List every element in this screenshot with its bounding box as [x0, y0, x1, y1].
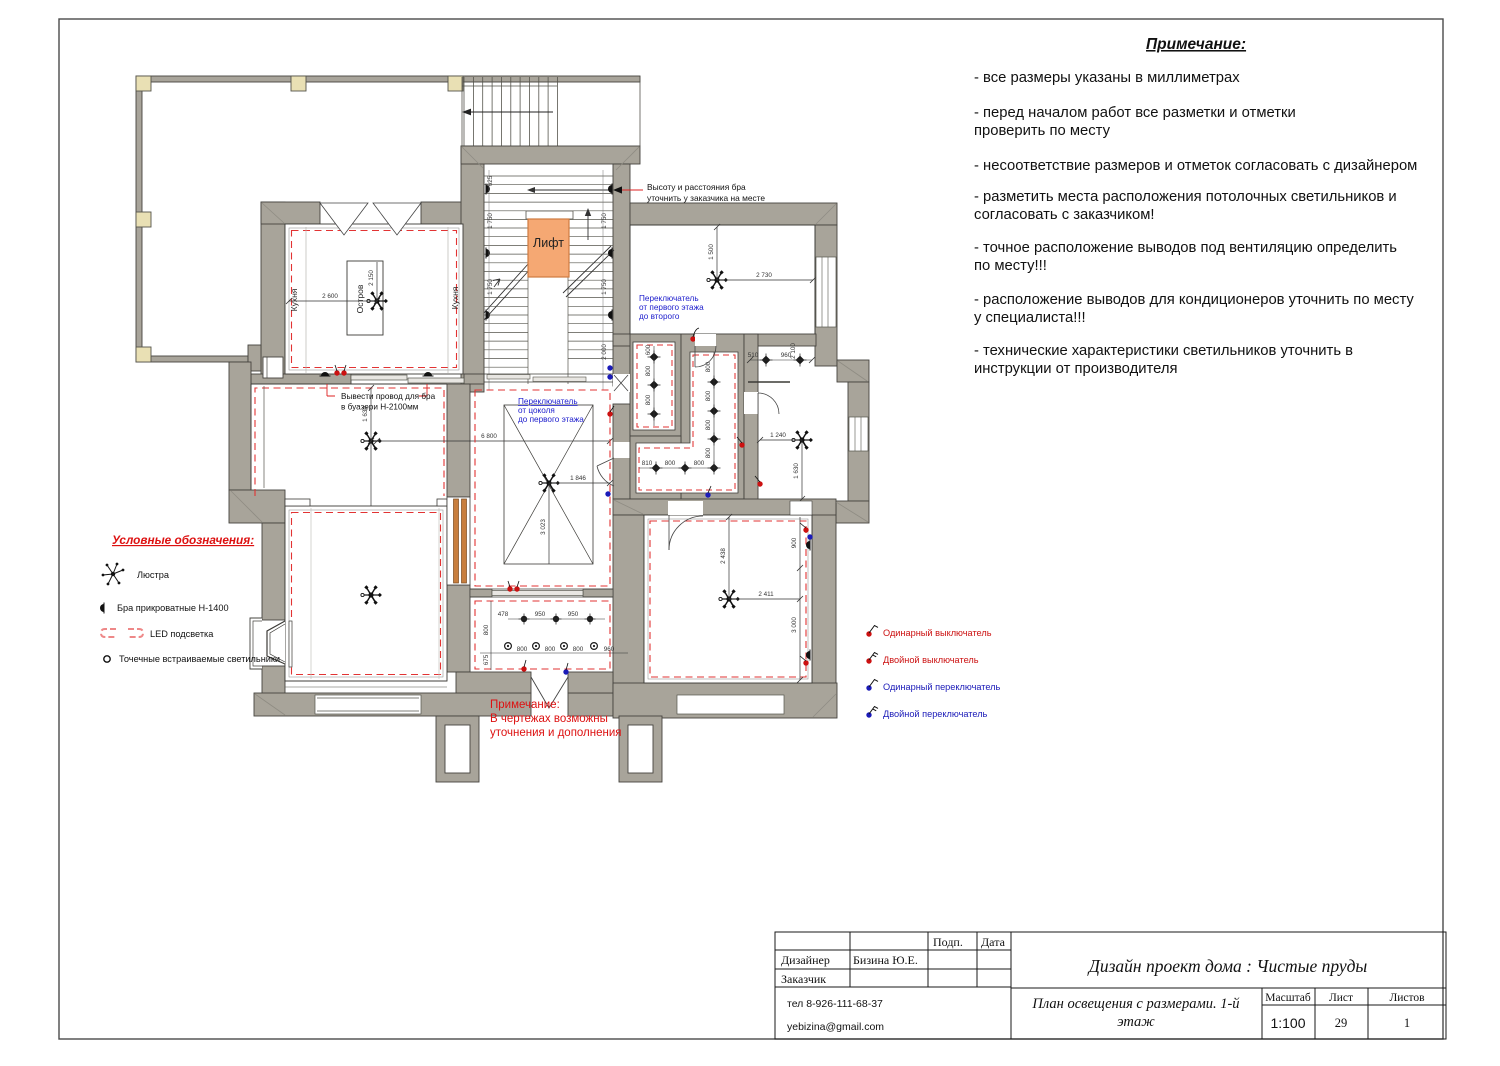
svg-text:1 750: 1 750 — [601, 279, 608, 295]
svg-text:в буазери Н-2100мм: в буазери Н-2100мм — [341, 403, 419, 412]
svg-text:800: 800 — [705, 419, 712, 430]
svg-text:Примечание:: Примечание: — [490, 699, 560, 711]
svg-text:800: 800 — [645, 394, 652, 405]
svg-text:Условные обозначения:: Условные обозначения: — [112, 533, 254, 547]
svg-text:- перед началом работ все разм: - перед началом работ все разметки и отм… — [974, 105, 1296, 121]
svg-text:1:100: 1:100 — [1270, 1015, 1305, 1031]
svg-text:В чертежах возможны: В чертежах возможны — [490, 713, 608, 725]
svg-text:Листов: Листов — [1389, 992, 1425, 1004]
svg-text:2 150: 2 150 — [368, 270, 375, 286]
svg-text:2 000: 2 000 — [601, 344, 608, 360]
svg-text:Дизайн проект дома : Чистые пр: Дизайн проект дома : Чистые пруды — [1087, 956, 1368, 976]
svg-text:800: 800 — [705, 390, 712, 401]
svg-text:Двойной переключатель: Двойной переключатель — [883, 709, 988, 719]
svg-text:800: 800 — [483, 624, 490, 635]
svg-text:у специалиста!!!: у специалиста!!! — [974, 310, 1086, 326]
svg-text:- расположение выводов для кон: - расположение выводов для кондиционеров… — [974, 292, 1414, 308]
svg-text:Двойной выключатель: Двойной выключатель — [883, 655, 979, 665]
svg-text:уточнить у заказчика на месте: уточнить у заказчика на месте — [647, 193, 765, 203]
svg-text:1 240: 1 240 — [770, 432, 786, 439]
svg-text:625: 625 — [487, 175, 494, 186]
svg-text:- точное расположение выводов: - точное расположение выводов под вентил… — [974, 240, 1397, 256]
svg-text:по месту!!!: по месту!!! — [974, 258, 1047, 274]
svg-text:1 846: 1 846 — [570, 475, 586, 482]
svg-text:проверить по месту: проверить по месту — [974, 123, 1111, 139]
svg-text:2 411: 2 411 — [758, 591, 774, 598]
svg-text:2 730: 2 730 — [756, 272, 772, 279]
svg-text:800: 800 — [645, 365, 652, 376]
svg-text:800: 800 — [573, 646, 584, 653]
svg-text:675: 675 — [483, 654, 490, 665]
svg-text:Примечание:: Примечание: — [1146, 36, 1246, 53]
svg-text:3 000: 3 000 — [791, 617, 798, 633]
svg-text:Дата: Дата — [981, 935, 1006, 949]
svg-text:- несоответствие размеров и от: - несоответствие размеров и отметок согл… — [974, 158, 1417, 174]
svg-text:Кухня: Кухня — [450, 286, 460, 309]
svg-text:Бизина Ю.Е.: Бизина Ю.Е. — [853, 953, 918, 967]
svg-text:до первого этажа: до первого этажа — [518, 415, 584, 424]
svg-text:800: 800 — [545, 646, 556, 653]
svg-text:Переключатель: Переключатель — [639, 294, 699, 303]
svg-text:согласовать с заказчиком!: согласовать с заказчиком! — [974, 207, 1155, 223]
svg-text:900: 900 — [791, 537, 798, 548]
svg-text:Масштаб: Масштаб — [1265, 992, 1311, 1004]
svg-text:Точечные встраиваемые светильн: Точечные встраиваемые светильники — [119, 654, 280, 664]
svg-text:инструкции от производителя: инструкции от производителя — [974, 361, 1177, 377]
svg-text:Подп.: Подп. — [933, 935, 963, 949]
svg-text:1: 1 — [1404, 1016, 1410, 1030]
svg-text:yebizina@gmail.com: yebizina@gmail.com — [787, 1021, 884, 1033]
svg-text:810: 810 — [642, 460, 653, 467]
svg-text:уточнения и дополнения: уточнения и дополнения — [490, 727, 622, 739]
svg-text:2 600: 2 600 — [322, 293, 338, 300]
svg-text:Одинарный переключатель: Одинарный переключатель — [883, 682, 1001, 692]
svg-text:2 100: 2 100 — [790, 343, 797, 359]
svg-text:950: 950 — [535, 611, 546, 618]
svg-text:Лист: Лист — [1329, 992, 1353, 1004]
svg-text:29: 29 — [1335, 1016, 1348, 1030]
svg-text:478: 478 — [498, 611, 509, 618]
svg-text:1 630: 1 630 — [793, 463, 800, 479]
svg-text:800: 800 — [517, 646, 528, 653]
svg-text:Вывести провод для бра: Вывести провод для бра — [341, 392, 436, 401]
svg-text:Одинарный выключатель: Одинарный выключатель — [883, 628, 992, 638]
svg-text:3 023: 3 023 — [540, 519, 547, 535]
svg-text:Высоту и расстояния бра: Высоту и расстояния бра — [647, 182, 746, 192]
svg-text:LED подсветка: LED подсветка — [150, 629, 214, 639]
svg-text:- технические характеристики с: - технические характеристики светильнико… — [974, 343, 1353, 359]
svg-text:600: 600 — [645, 344, 652, 355]
svg-text:510: 510 — [748, 352, 759, 359]
svg-text:Переключатель: Переключатель — [518, 397, 578, 406]
svg-text:- разметить места расположения: - разметить места расположения потолочны… — [974, 189, 1397, 205]
svg-text:1 500: 1 500 — [708, 244, 715, 260]
svg-text:Люстра: Люстра — [137, 570, 170, 580]
svg-text:950: 950 — [568, 611, 579, 618]
svg-text:тел 8-926-111-68-37: тел 8-926-111-68-37 — [787, 998, 883, 1010]
svg-text:Заказчик: Заказчик — [781, 972, 826, 986]
svg-text:800: 800 — [705, 447, 712, 458]
svg-text:до второго: до второго — [639, 312, 680, 321]
svg-text:План освещения с размерами. 1-: План освещения с размерами. 1-й — [1031, 996, 1240, 1012]
svg-text:этаж: этаж — [1117, 1014, 1155, 1030]
svg-text:1 750: 1 750 — [487, 213, 494, 229]
svg-text:от первого этажа: от первого этажа — [639, 303, 704, 312]
svg-text:800: 800 — [694, 460, 705, 467]
svg-text:Дизайнер: Дизайнер — [781, 953, 830, 967]
svg-text:1 750: 1 750 — [487, 279, 494, 295]
svg-text:800: 800 — [705, 361, 712, 372]
svg-text:Остров: Остров — [355, 284, 365, 313]
svg-text:960: 960 — [604, 646, 615, 653]
svg-text:1 750: 1 750 — [601, 213, 608, 229]
svg-text:2 438: 2 438 — [720, 548, 727, 564]
svg-text:6 800: 6 800 — [481, 433, 497, 440]
svg-text:Лифт: Лифт — [533, 236, 564, 250]
svg-text:от цоколя: от цоколя — [518, 406, 555, 415]
svg-text:800: 800 — [665, 460, 676, 467]
svg-text:- все размеры указаны в миллим: - все размеры указаны в миллиметрах — [974, 70, 1240, 86]
svg-text:Бра прикроватные Н-1400: Бра прикроватные Н-1400 — [117, 603, 229, 613]
